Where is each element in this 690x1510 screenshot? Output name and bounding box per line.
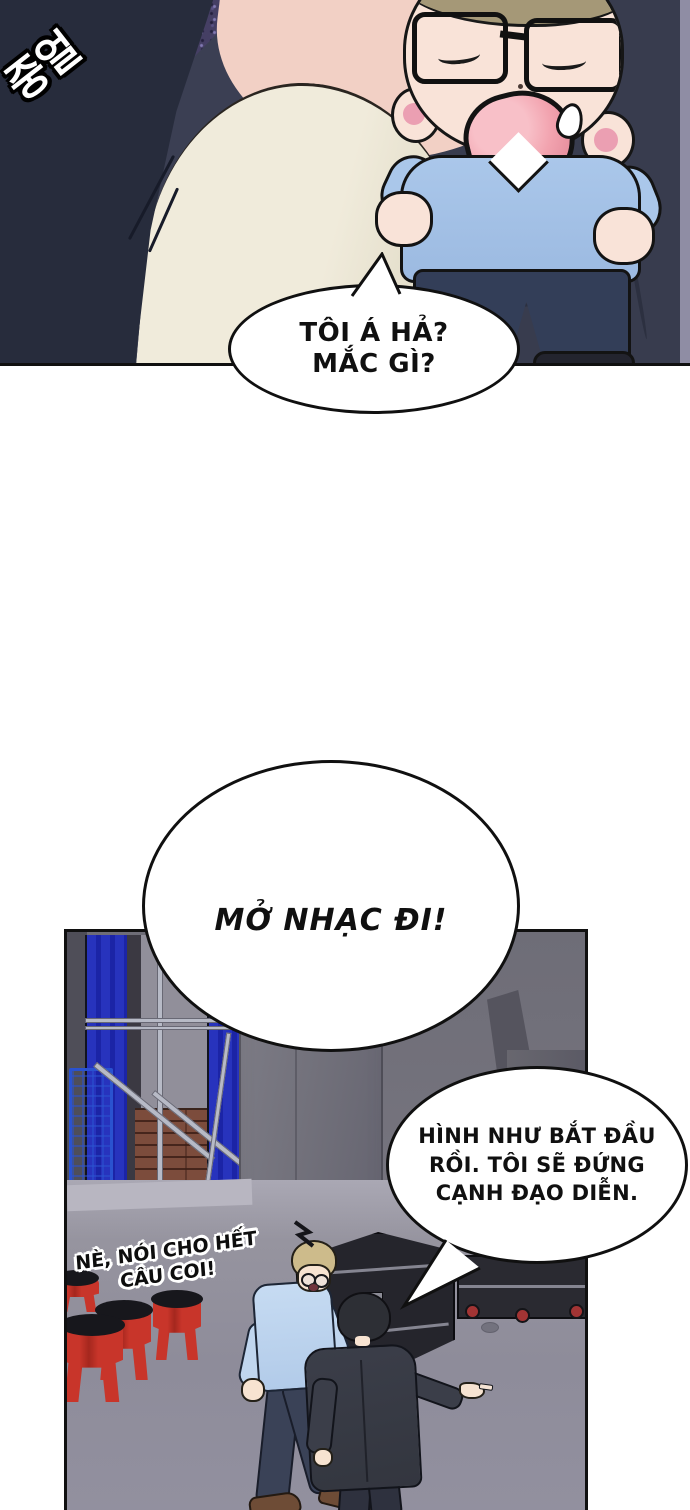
- scaffold-pole-horizontal: [85, 1026, 235, 1030]
- bubble-tail: [396, 1238, 486, 1310]
- hand-left: [313, 1448, 333, 1467]
- bubble-text-line: MẮC GÌ?: [312, 349, 436, 380]
- speech-bubble-music: MỞ NHẠC ĐI!: [142, 760, 520, 1052]
- coat-seam: [360, 1360, 368, 1482]
- open-mouth: [308, 1283, 319, 1292]
- hand-left: [241, 1378, 265, 1402]
- face: [297, 1264, 331, 1292]
- bubble-text-line: CẠNH ĐẠO DIỄN.: [436, 1179, 638, 1208]
- speech-bubble-chibi: TÔI Á HẢ? MẮC GÌ?: [228, 284, 520, 414]
- glasses-lens-right: [524, 18, 624, 92]
- bubble-tail: [348, 252, 406, 300]
- speech-bubble-director: HÌNH NHƯ BẮT ĐẦU RỒI. TÔI SẼ ĐỨNG CẠNH Đ…: [386, 1066, 688, 1264]
- neck: [355, 1336, 370, 1346]
- caster-wheel: [515, 1308, 530, 1323]
- nose-dot: [518, 84, 523, 89]
- bubble-text-line: HÌNH NHƯ BẮT ĐẦU: [418, 1122, 655, 1151]
- bubble-text-line: RỒI. TÔI SẼ ĐỨNG: [429, 1151, 645, 1180]
- blush: [594, 128, 618, 152]
- comic-page: 중얼: [0, 0, 690, 1510]
- caster-wheel: [569, 1304, 584, 1319]
- suited-man-character: [281, 1292, 501, 1510]
- motion-mark-icon: [289, 1220, 319, 1250]
- chibi-shoe-right: [533, 351, 635, 366]
- bubble-text-line: MỞ NHẠC ĐI!: [215, 903, 448, 938]
- chibi-fist-right: [593, 207, 655, 265]
- dark-hair: [337, 1292, 391, 1342]
- bubble-text-line: TÔI Á HẢ?: [299, 318, 448, 349]
- glasses-lens-left: [412, 12, 508, 84]
- chibi-fist-left: [375, 191, 433, 247]
